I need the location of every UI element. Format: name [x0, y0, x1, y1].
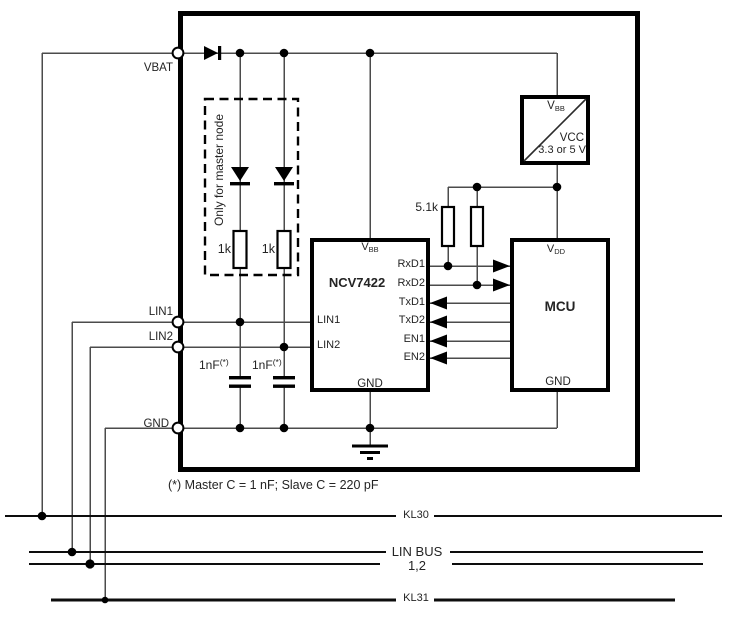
- kl31-label: KL31: [399, 593, 433, 605]
- resistor-1k-lin2-icon: [278, 231, 291, 268]
- lin-transceiver-application-schematic: VBAT LIN1 LIN2 GND Only for master node …: [0, 0, 751, 617]
- vbb-sub: BB: [369, 245, 379, 254]
- ncv7422-pin-en2: EN2: [365, 352, 425, 364]
- ncv7422-pin-rxd1: RxD1: [365, 259, 425, 271]
- reg-vbb-main: V: [547, 100, 555, 112]
- footnote-text: (*) Master C = 1 nF; Slave C = 220 pF: [168, 479, 379, 493]
- junction-dot: [280, 343, 289, 352]
- resistor-1k-lin1-icon: [234, 231, 247, 268]
- cap2-value: 1nF: [252, 358, 273, 372]
- lin1-terminal-icon: [173, 317, 184, 328]
- junction-dot: [553, 183, 562, 192]
- junction-dot: [68, 548, 77, 557]
- ncv7422-pin-txd2: TxD2: [365, 315, 425, 327]
- ncv7422-pin-lin1: LIN1: [317, 315, 340, 327]
- junction-dot: [236, 424, 245, 433]
- cap-plate-bottom: [229, 385, 251, 388]
- junction-dot: [102, 597, 109, 604]
- ncv7422-pin-en1: EN1: [365, 334, 425, 346]
- regulator-vbb-label: VBB: [533, 100, 579, 113]
- lin2-terminal-icon: [173, 342, 184, 353]
- only-for-master-node-label: Only for master node: [212, 114, 226, 226]
- kl30-label: KL30: [399, 510, 433, 522]
- lin-bus-number-label: 1,2: [385, 559, 449, 573]
- cap-plate-bottom: [273, 385, 295, 388]
- ncv7422-pin-rxd2: RxD2: [365, 278, 425, 290]
- diode-bar: [274, 182, 294, 185]
- junction-dot: [366, 49, 375, 58]
- vbb-main: V: [361, 241, 368, 253]
- vdd-sub: DD: [554, 247, 565, 256]
- ncv7422-pin-gnd: GND: [340, 378, 400, 390]
- junction-dot: [236, 318, 245, 327]
- junction-dot: [280, 49, 289, 58]
- lin1-terminal-label: LIN1: [131, 306, 173, 318]
- cap1-value: 1nF: [199, 358, 220, 372]
- lin-bus-label: LIN BUS: [385, 545, 449, 559]
- vbat-terminal-label: VBAT: [131, 62, 173, 74]
- junction-dot: [38, 512, 47, 521]
- cap-plate-top: [273, 376, 295, 379]
- junction-dot: [444, 262, 453, 271]
- cap-plate-top: [229, 376, 251, 379]
- junction-dot: [85, 559, 94, 568]
- resistor-5k1-rxd2-icon: [471, 207, 483, 246]
- external-bus-lines: [5, 516, 722, 600]
- junction-dot: [473, 183, 482, 192]
- vbat-terminal-icon: [173, 48, 184, 59]
- cap1-footnote-mark: (*): [220, 357, 229, 367]
- diode-cathode-bar: [218, 46, 221, 60]
- mcu-vdd-pin-label: VDD: [530, 244, 582, 256]
- lin2-terminal-label: LIN2: [131, 331, 173, 343]
- resistor-1k-lin2-label: 1k: [252, 243, 275, 257]
- gnd-terminal-icon: [173, 423, 184, 434]
- junction-dot: [473, 281, 482, 290]
- diode-bar: [230, 182, 250, 185]
- mcu-pin-gnd: GND: [530, 376, 586, 388]
- junction-dot: [280, 424, 289, 433]
- mcu-name-label: MCU: [512, 300, 608, 315]
- regulator-rating-label: 3.3 or 5 V: [520, 145, 586, 157]
- resistor-1k-lin1-label: 1k: [208, 243, 231, 257]
- capacitor-lin2-label: 1nF(*): [252, 358, 282, 372]
- reg-vbb-sub: BB: [555, 104, 565, 113]
- junction-dot: [236, 49, 245, 58]
- ncv7422-pin-lin2: LIN2: [317, 340, 340, 352]
- ncv7422-pin-txd1: TxD1: [365, 297, 425, 309]
- cap2-footnote-mark: (*): [273, 357, 282, 367]
- resistor-5k1-label: 5.1k: [403, 201, 438, 214]
- regulator-vcc-label: VCC: [536, 132, 584, 144]
- junction-dot: [366, 424, 375, 433]
- capacitor-lin1-label: 1nF(*): [199, 358, 229, 372]
- mcu-box: [512, 240, 608, 390]
- resistor-5k1-rxd1-icon: [442, 207, 454, 246]
- ncv7422-vbb-pin-label: VBB: [352, 242, 388, 254]
- gnd-terminal-label: GND: [127, 418, 169, 430]
